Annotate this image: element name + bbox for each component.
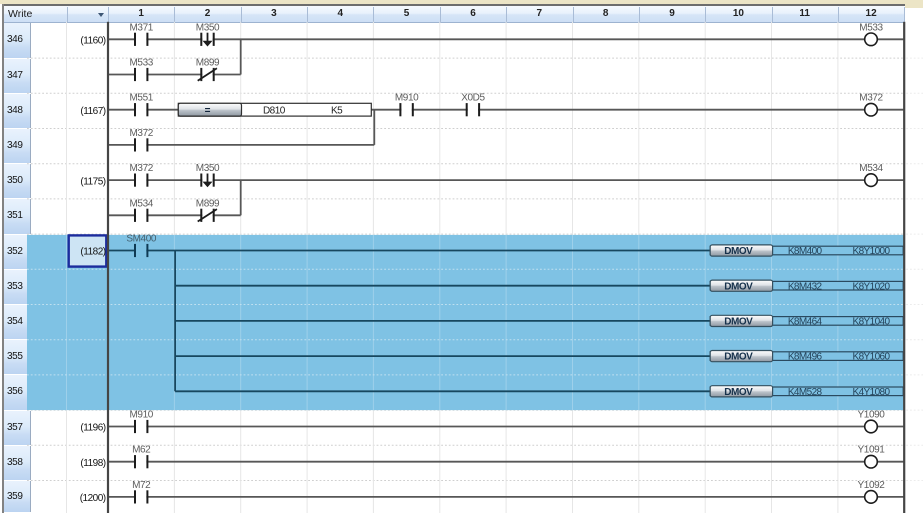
svg-text:M372: M372: [129, 128, 153, 139]
svg-text:K8M464: K8M464: [788, 317, 823, 328]
svg-text:=: =: [205, 106, 211, 117]
svg-text:M350: M350: [196, 163, 220, 174]
svg-text:Y1092: Y1092: [858, 480, 886, 491]
svg-text:(1175): (1175): [80, 176, 105, 187]
svg-text:DMOV: DMOV: [724, 246, 753, 257]
svg-text:M899: M899: [196, 198, 220, 209]
svg-text:M533: M533: [859, 22, 883, 33]
svg-text:M62: M62: [132, 445, 151, 456]
svg-text:(1182): (1182): [80, 247, 105, 258]
svg-text:M533: M533: [129, 58, 153, 69]
svg-text:M910: M910: [129, 410, 153, 421]
svg-text:M534: M534: [859, 163, 883, 174]
svg-text:(1167): (1167): [80, 106, 105, 117]
svg-text:K4M528: K4M528: [788, 387, 823, 398]
svg-text:K8M496: K8M496: [788, 352, 823, 363]
svg-text:K8Y1020: K8Y1020: [853, 281, 891, 292]
svg-text:(1200): (1200): [80, 493, 106, 504]
svg-text:Y1091: Y1091: [858, 445, 886, 456]
svg-text:DMOV: DMOV: [724, 387, 753, 398]
svg-text:K8Y1060: K8Y1060: [853, 352, 891, 363]
svg-text:(1198): (1198): [80, 458, 105, 469]
svg-text:K5: K5: [331, 106, 343, 117]
svg-text:M350: M350: [196, 22, 220, 33]
svg-text:X0D5: X0D5: [461, 93, 485, 104]
svg-text:(1196): (1196): [80, 423, 105, 434]
svg-text:K4Y1080: K4Y1080: [853, 387, 891, 398]
svg-text:K8M432: K8M432: [788, 281, 823, 292]
svg-text:M534: M534: [129, 198, 153, 209]
svg-text:M72: M72: [132, 480, 151, 491]
svg-text:M371: M371: [129, 22, 153, 33]
svg-text:M551: M551: [129, 93, 153, 104]
svg-text:(1160): (1160): [80, 36, 105, 47]
svg-text:M910: M910: [395, 93, 419, 104]
svg-text:M372: M372: [129, 163, 153, 174]
svg-text:DMOV: DMOV: [724, 317, 753, 328]
svg-text:DMOV: DMOV: [724, 281, 753, 292]
svg-text:SM400: SM400: [126, 234, 157, 245]
svg-text:K8Y1040: K8Y1040: [853, 317, 891, 328]
svg-text:K8M400: K8M400: [788, 246, 823, 257]
svg-text:Y1090: Y1090: [858, 410, 886, 421]
svg-text:D810: D810: [263, 106, 286, 117]
svg-text:M899: M899: [196, 58, 220, 69]
svg-text:M372: M372: [859, 93, 883, 104]
svg-text:DMOV: DMOV: [724, 352, 753, 363]
svg-text:K8Y1000: K8Y1000: [853, 246, 891, 257]
